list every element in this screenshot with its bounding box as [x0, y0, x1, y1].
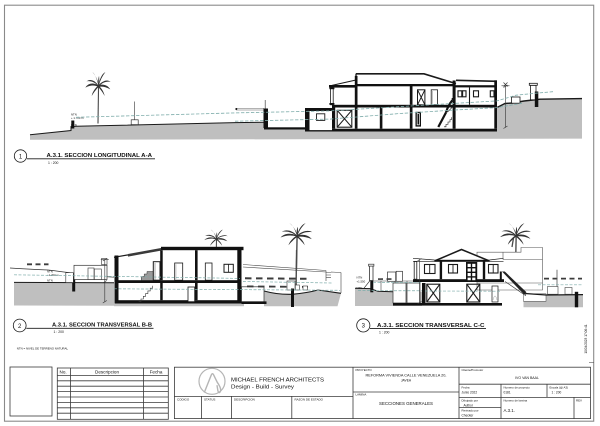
svg-text:DESCRIPCION: DESCRIPCION	[234, 398, 255, 402]
svg-text:Fecha: Fecha	[150, 370, 163, 375]
svg-text:SECCIONES GENERALES: SECCIONES GENERALES	[379, 401, 433, 406]
svg-text:Design - Build - Survey: Design - Build - Survey	[231, 385, 295, 391]
svg-text:1 : 200: 1 : 200	[379, 330, 389, 334]
svg-text:+ 1.700 m: + 1.700 m	[71, 116, 84, 120]
svg-text:Checker: Checker	[462, 413, 475, 417]
svg-text:LAMINA: LAMINA	[356, 393, 367, 397]
svg-text:No.: No.	[60, 370, 67, 375]
svg-text:PROYECTO: PROYECTO	[356, 368, 373, 372]
svg-text:10/04/2023 17:06:41: 10/04/2023 17:06:41	[584, 324, 588, 353]
svg-text:REV: REV	[576, 398, 582, 402]
svg-text:3: 3	[362, 324, 366, 330]
svg-text:RAZON DE ESTADO: RAZON DE ESTADO	[295, 398, 324, 402]
svg-text:Numero de lamina: Numero de lamina	[504, 398, 528, 402]
svg-text:A.3.1. SECCION TRANSVERSAL B-B: A.3.1. SECCION TRANSVERSAL B-B	[52, 323, 152, 329]
svg-text:Escala (@ A3): Escala (@ A3)	[550, 385, 569, 389]
svg-text:A.3.1.: A.3.1.	[504, 408, 515, 413]
svg-text:+1.200 m: +1.200 m	[47, 273, 59, 277]
svg-text:IVO VAN BAAL: IVO VAN BAAL	[515, 376, 539, 380]
svg-text:NTN: NTN	[47, 279, 53, 283]
svg-text:Revisado por: Revisado por	[462, 409, 479, 413]
svg-text:NTN = NIVEL DE TERRENO NATURAL: NTN = NIVEL DE TERRENO NATURAL	[17, 346, 69, 350]
svg-text:A.3.1. SECCION TRANSVERSAL C-C: A.3.1. SECCION TRANSVERSAL C-C	[377, 323, 485, 329]
svg-text:REFORMA VIVIENDA CALLE VENEZUE: REFORMA VIVIENDA CALLE VENEZUELA 20,	[366, 374, 447, 378]
svg-text:Junio 2022: Junio 2022	[462, 390, 478, 394]
svg-text:Fecha: Fecha	[462, 385, 470, 389]
svg-text:Descripcion: Descripcion	[95, 370, 119, 375]
svg-text:0181: 0181	[504, 390, 511, 394]
svg-text:Dibujado por: Dibujado por	[462, 398, 478, 402]
svg-text:Cliente/Promotor: Cliente/Promotor	[462, 368, 484, 372]
svg-text:CODIGO: CODIGO	[177, 398, 190, 402]
svg-text:Numero de proyecto: Numero de proyecto	[504, 385, 531, 389]
svg-text:A.3.1. SECCION LONGITUDINAL A-: A.3.1. SECCION LONGITUDINAL A-A	[47, 153, 153, 159]
svg-text:1 : 200: 1 : 200	[54, 330, 64, 334]
svg-text:1 : 200: 1 : 200	[552, 390, 562, 394]
svg-text:NTN: NTN	[357, 286, 363, 290]
svg-text:1 : 200: 1 : 200	[48, 161, 58, 165]
svg-text:MICHAEL FRENCH ARCHITECTS: MICHAEL FRENCH ARCHITECTS	[231, 377, 324, 383]
svg-text:JAVEA: JAVEA	[401, 378, 412, 382]
svg-text:Author: Author	[464, 403, 474, 407]
svg-text:NTN: NTN	[71, 123, 77, 127]
svg-text:2: 2	[18, 324, 22, 330]
svg-text:STATUS: STATUS	[204, 398, 215, 402]
svg-text:+1.550: +1.550	[357, 279, 366, 283]
svg-text:1: 1	[19, 154, 23, 160]
